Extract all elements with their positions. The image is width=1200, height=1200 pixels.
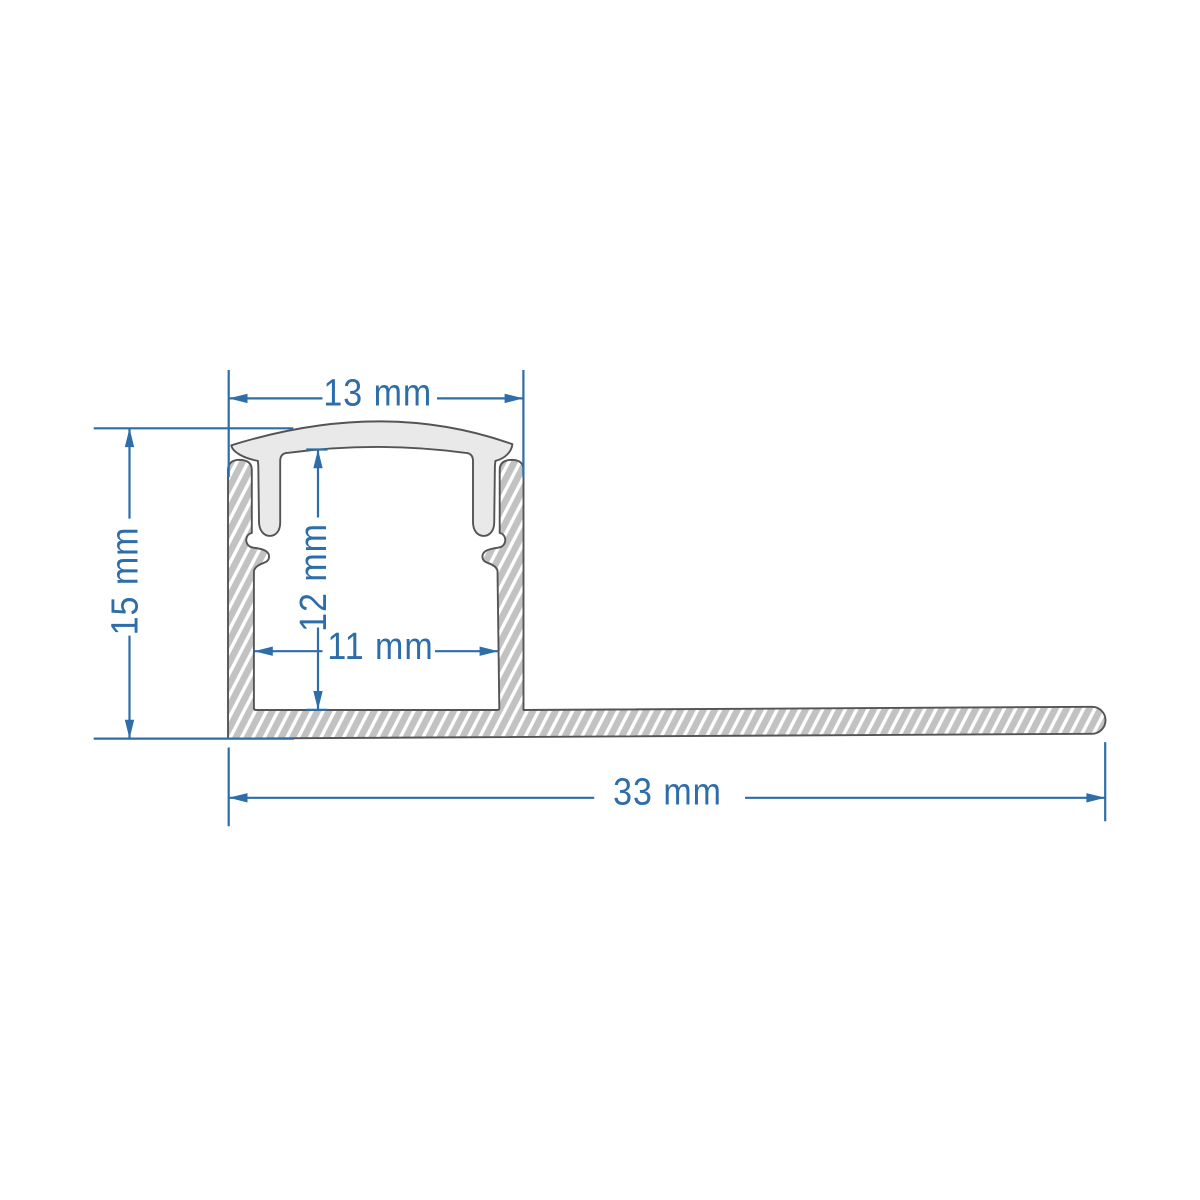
svg-text:11 mm: 11 mm	[327, 624, 433, 667]
svg-text:12 mm: 12 mm	[291, 523, 334, 632]
svg-text:13 mm: 13 mm	[323, 371, 432, 414]
svg-text:15 mm: 15 mm	[103, 527, 146, 636]
svg-text:33 mm: 33 mm	[613, 769, 722, 812]
